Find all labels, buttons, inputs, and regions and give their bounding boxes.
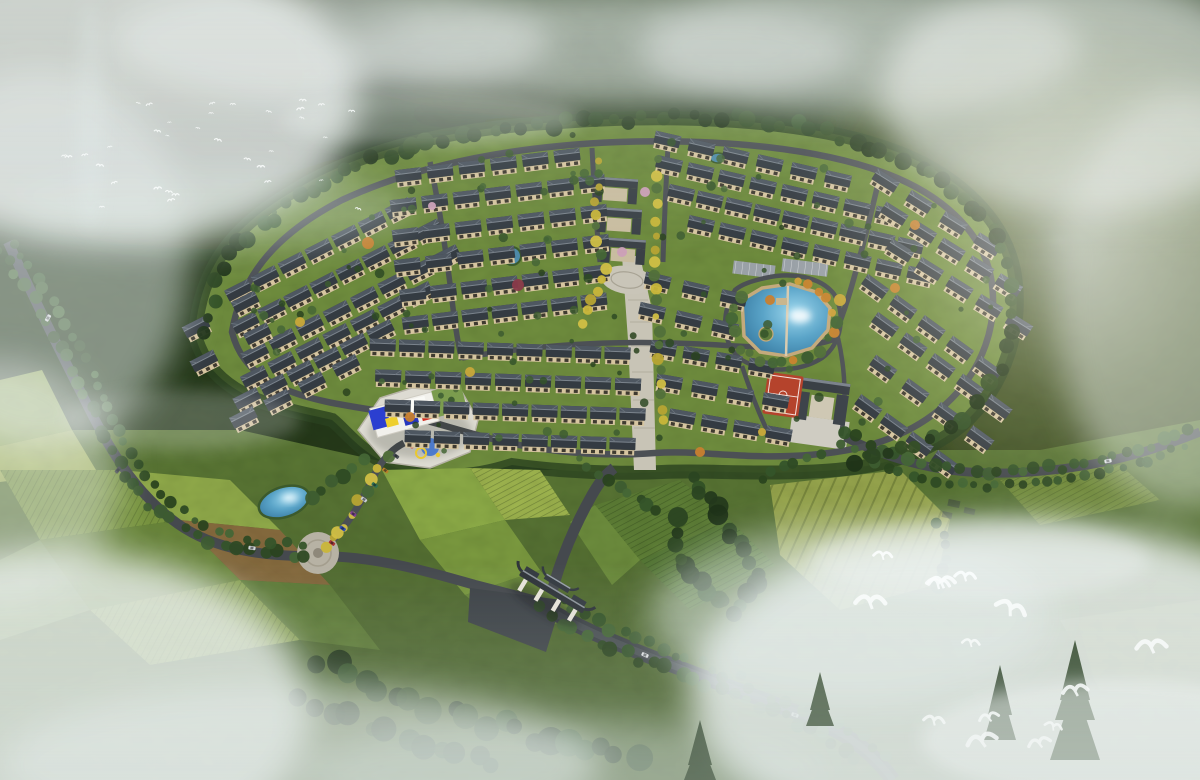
tree <box>570 306 579 315</box>
house-unit <box>435 371 462 389</box>
tree <box>197 326 211 340</box>
aerial-rendering-canvas <box>0 0 1200 780</box>
tree <box>776 357 786 367</box>
tree <box>590 362 595 367</box>
tree <box>584 274 593 283</box>
bottom-haze <box>0 560 1200 780</box>
house-unit <box>590 407 617 425</box>
house-unit <box>399 339 426 357</box>
tree <box>209 295 223 309</box>
tree <box>465 367 475 377</box>
tree <box>655 389 666 400</box>
tree <box>659 415 668 424</box>
tree <box>728 347 735 354</box>
house-unit <box>531 405 558 423</box>
tree <box>273 348 281 356</box>
tree <box>630 332 637 339</box>
house-unit <box>431 311 459 332</box>
tree <box>851 445 859 453</box>
tree <box>758 428 766 436</box>
tree <box>259 311 268 320</box>
tree <box>198 520 209 531</box>
tree <box>215 527 224 536</box>
tree <box>487 307 492 312</box>
tree <box>343 388 351 396</box>
house-unit <box>460 279 488 300</box>
tree <box>736 345 745 354</box>
tree <box>600 263 612 275</box>
tree <box>640 398 649 407</box>
tree <box>691 352 700 361</box>
tree <box>865 448 881 464</box>
house-unit <box>434 431 461 449</box>
house-unit <box>463 432 490 450</box>
tree <box>838 426 851 439</box>
house-unit <box>552 268 580 289</box>
tree <box>652 353 664 365</box>
tree <box>657 379 667 389</box>
tree <box>656 435 663 442</box>
tree <box>543 427 552 436</box>
tree <box>422 327 428 333</box>
house-unit <box>369 338 396 356</box>
tree <box>667 537 683 553</box>
tree <box>495 434 502 441</box>
house-unit <box>580 436 607 454</box>
house-unit <box>516 344 543 362</box>
tree <box>277 325 285 333</box>
house-unit <box>394 257 422 278</box>
tree <box>695 447 705 457</box>
tree <box>655 341 664 350</box>
tree <box>814 393 823 402</box>
tree <box>708 505 729 526</box>
tree <box>412 422 419 429</box>
tree <box>622 488 631 497</box>
house-unit <box>472 403 499 421</box>
tree <box>305 491 320 506</box>
tree <box>203 313 213 323</box>
tree <box>585 294 596 305</box>
tree <box>634 348 640 354</box>
house-unit <box>491 303 519 324</box>
house-unit <box>555 376 582 394</box>
tree <box>180 505 189 514</box>
tree <box>651 294 662 305</box>
tree <box>760 330 768 338</box>
tree <box>362 485 375 498</box>
tree <box>672 527 684 539</box>
tree <box>510 358 517 365</box>
tree <box>428 373 434 379</box>
tree <box>409 323 414 328</box>
tree <box>254 286 261 293</box>
tree <box>612 314 618 320</box>
tree <box>653 313 660 320</box>
tree <box>217 262 232 277</box>
tree <box>729 325 741 337</box>
tree <box>801 351 813 363</box>
tree <box>325 475 338 488</box>
tree <box>803 453 812 462</box>
tree <box>243 536 251 544</box>
tree <box>735 291 748 304</box>
house-unit <box>502 404 529 422</box>
tree <box>794 416 800 422</box>
tree <box>512 279 524 291</box>
tree <box>648 270 660 282</box>
tree <box>658 405 668 415</box>
tree <box>151 480 160 489</box>
house-unit <box>399 287 427 308</box>
tree <box>765 295 775 305</box>
tree <box>597 275 606 284</box>
tree <box>299 542 307 550</box>
house-unit <box>575 346 602 364</box>
tree <box>602 474 615 487</box>
top-haze <box>0 0 1200 260</box>
tree <box>373 464 382 473</box>
tree <box>559 430 568 439</box>
tree <box>745 349 753 357</box>
tree <box>763 320 772 329</box>
house-unit <box>545 345 572 363</box>
tree <box>681 330 688 337</box>
tree <box>786 366 793 373</box>
tree <box>354 266 361 273</box>
tree <box>569 339 574 344</box>
tree <box>375 269 385 279</box>
tree <box>614 429 620 435</box>
pond-deck <box>776 298 787 305</box>
house-unit <box>560 406 587 424</box>
tree <box>201 536 215 550</box>
tree <box>762 268 767 273</box>
tree <box>893 466 903 476</box>
tree <box>665 339 674 348</box>
tree <box>295 317 305 327</box>
tree <box>534 312 542 320</box>
tree <box>651 283 663 295</box>
house-unit <box>615 378 642 396</box>
tree <box>779 280 786 287</box>
tree <box>325 281 331 287</box>
tree <box>725 312 738 325</box>
tree <box>650 505 661 516</box>
tree <box>307 306 316 315</box>
house-unit <box>457 342 484 360</box>
tree <box>383 451 395 463</box>
house-unit <box>604 347 631 365</box>
house-unit <box>375 369 402 387</box>
house-unit <box>487 343 514 361</box>
tree <box>917 474 927 484</box>
tree <box>126 447 138 459</box>
house-unit <box>430 283 458 304</box>
tree <box>583 305 593 315</box>
tree <box>816 449 826 459</box>
tree <box>164 496 176 508</box>
house-unit <box>522 272 550 293</box>
tree <box>225 529 234 538</box>
tree <box>251 308 257 314</box>
tree <box>139 470 150 481</box>
tree <box>143 503 152 512</box>
tree <box>526 376 534 384</box>
house-unit <box>521 434 548 452</box>
tree <box>725 355 731 361</box>
tree <box>576 455 582 461</box>
tree <box>765 466 775 476</box>
tree <box>654 326 666 338</box>
tree <box>229 541 243 555</box>
house-unit <box>609 437 636 455</box>
tree <box>358 453 370 465</box>
tree <box>351 494 363 506</box>
tree <box>617 371 622 376</box>
aerial-rendering <box>0 0 1200 780</box>
tree <box>656 365 665 374</box>
tree <box>253 539 260 546</box>
tree <box>441 448 447 454</box>
tree <box>403 310 411 318</box>
tree <box>787 458 798 469</box>
tree <box>279 300 286 307</box>
tree <box>789 356 797 364</box>
house-unit <box>404 430 431 448</box>
tree <box>265 538 277 550</box>
house-unit <box>495 374 522 392</box>
tree <box>133 486 143 496</box>
tree <box>372 312 380 320</box>
tree <box>402 380 407 385</box>
house-unit <box>414 400 441 418</box>
tree <box>436 423 441 428</box>
tree <box>692 486 706 500</box>
tree <box>134 460 144 470</box>
tree <box>405 412 415 422</box>
tree <box>498 331 504 337</box>
tree <box>270 318 275 323</box>
tree <box>850 429 862 441</box>
tree <box>193 530 202 539</box>
house-unit <box>461 307 489 328</box>
house-unit <box>619 408 646 426</box>
tree <box>578 319 588 329</box>
house-unit <box>428 340 455 358</box>
tree <box>836 440 845 449</box>
tree <box>182 523 191 532</box>
tree <box>582 463 591 472</box>
tree <box>540 377 548 385</box>
tree <box>347 265 351 269</box>
tree <box>192 517 199 524</box>
tree <box>512 400 518 406</box>
tree <box>163 511 175 523</box>
house-unit <box>443 401 470 419</box>
tree <box>846 455 863 472</box>
house-unit <box>585 377 612 395</box>
house-unit <box>405 370 432 388</box>
tree <box>668 507 688 527</box>
tree <box>282 537 292 547</box>
tree <box>156 490 165 499</box>
tree <box>379 378 385 384</box>
tree <box>594 471 603 480</box>
tree <box>485 285 493 293</box>
tree <box>538 270 545 277</box>
tree <box>593 287 603 297</box>
tree <box>729 304 738 313</box>
tree <box>755 356 766 367</box>
tree <box>701 291 707 297</box>
tree <box>759 475 767 483</box>
